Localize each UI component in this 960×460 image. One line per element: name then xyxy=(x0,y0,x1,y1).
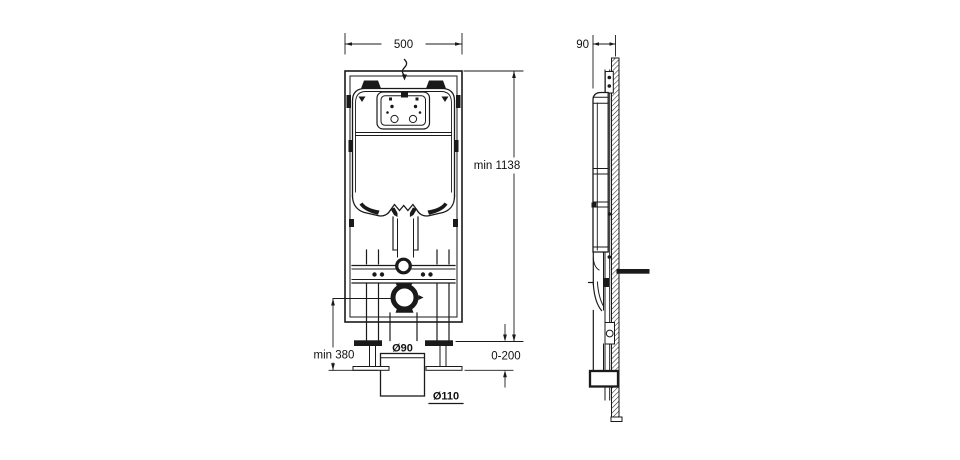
flush-rod-right xyxy=(409,115,416,122)
wall-anchor-arm xyxy=(617,269,650,274)
dim-height-label: min 1138 xyxy=(474,160,520,172)
dim-height: min 1138 xyxy=(456,71,523,342)
side-view: 90 xyxy=(576,36,649,422)
dim-drain-pipe-label: Ø110 xyxy=(433,391,459,403)
flush-pipe xyxy=(393,217,418,257)
dim-width-label: 500 xyxy=(394,39,413,51)
dim-drain-pipe: Ø110 xyxy=(429,391,463,404)
pipe-clamp xyxy=(605,323,615,345)
dim-depth-label: 90 xyxy=(576,39,589,51)
flush-pipe-grommet xyxy=(397,259,411,273)
drawing-svg: 500 min 1138 min 380 Ø90 xyxy=(0,0,960,460)
foot-profile xyxy=(590,371,618,387)
dim-width: 500 xyxy=(345,34,462,55)
drain-pipe xyxy=(381,354,425,397)
flush-plate-box xyxy=(377,92,430,129)
top-bracket xyxy=(605,72,613,94)
technical-drawing: 500 min 1138 min 380 Ø90 xyxy=(0,0,960,460)
water-supply-icon xyxy=(402,60,407,81)
dim-leg-adjust-label: 0-200 xyxy=(491,351,520,363)
dim-outlet-height-label: min 380 xyxy=(314,350,355,362)
fixing-rail xyxy=(352,259,455,283)
front-view: 500 min 1138 min 380 Ø90 xyxy=(314,34,523,404)
outlet-profile xyxy=(589,252,610,371)
dim-outlet-pipe-label: Ø90 xyxy=(392,343,413,355)
dim-leg-adjust: 0-200 xyxy=(465,325,521,388)
flush-rod-left xyxy=(391,115,398,122)
cistern-profile xyxy=(592,93,609,253)
